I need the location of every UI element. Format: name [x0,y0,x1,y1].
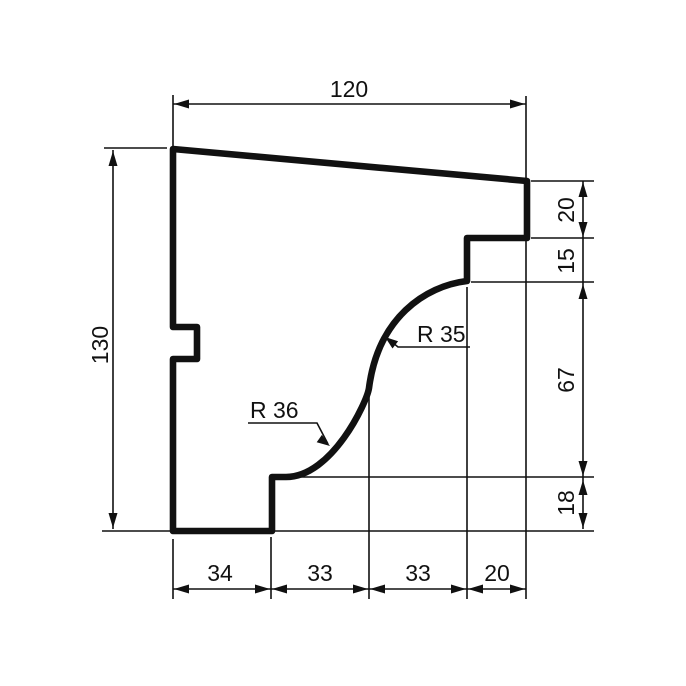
arrowhead [579,222,588,237]
arrowhead [174,100,189,109]
dimension-label-bottom-34: 34 [207,560,233,586]
arrowhead [579,513,588,528]
arrowhead [468,585,483,594]
cornice-profile-drawing: 120 130 20 15 67 18 34 33 33 20 R 35 R 3… [0,0,686,686]
dimension-label-right-18: 18 [553,490,579,516]
arrowhead [370,585,385,594]
arrowhead [451,585,466,594]
arrowhead [174,585,189,594]
profile-outline [173,149,527,531]
arrowhead [579,480,588,495]
arrowhead [109,151,118,166]
dimension-labels: 120 130 20 15 67 18 34 33 33 20 R 35 R 3… [87,76,579,586]
arrowhead [510,585,525,594]
arrowheads [109,100,588,594]
leader-line-r36 [248,423,328,444]
dimension-label-bottom-33a: 33 [307,560,333,586]
radius-label-r36: R 36 [250,397,299,423]
dimension-label-left-height: 130 [87,326,113,364]
arrowhead [510,100,525,109]
dimension-label-top-width: 120 [330,76,368,102]
arrowhead [255,585,270,594]
dimension-label-right-20: 20 [553,197,579,223]
dimension-label-bottom-20: 20 [484,560,510,586]
arrowhead [109,513,118,528]
technical-drawing-canvas: 120 130 20 15 67 18 34 33 33 20 R 35 R 3… [0,0,686,686]
arrowhead [579,182,588,197]
radius-label-r35: R 35 [417,321,466,347]
dimension-label-right-67: 67 [553,367,579,393]
dimension-label-right-15: 15 [553,248,579,274]
dimension-label-bottom-33b: 33 [405,560,431,586]
arrowhead [353,585,368,594]
arrowhead [579,461,588,476]
radius-leaders [248,337,470,446]
arrowhead [272,585,287,594]
arrowhead [579,284,588,299]
